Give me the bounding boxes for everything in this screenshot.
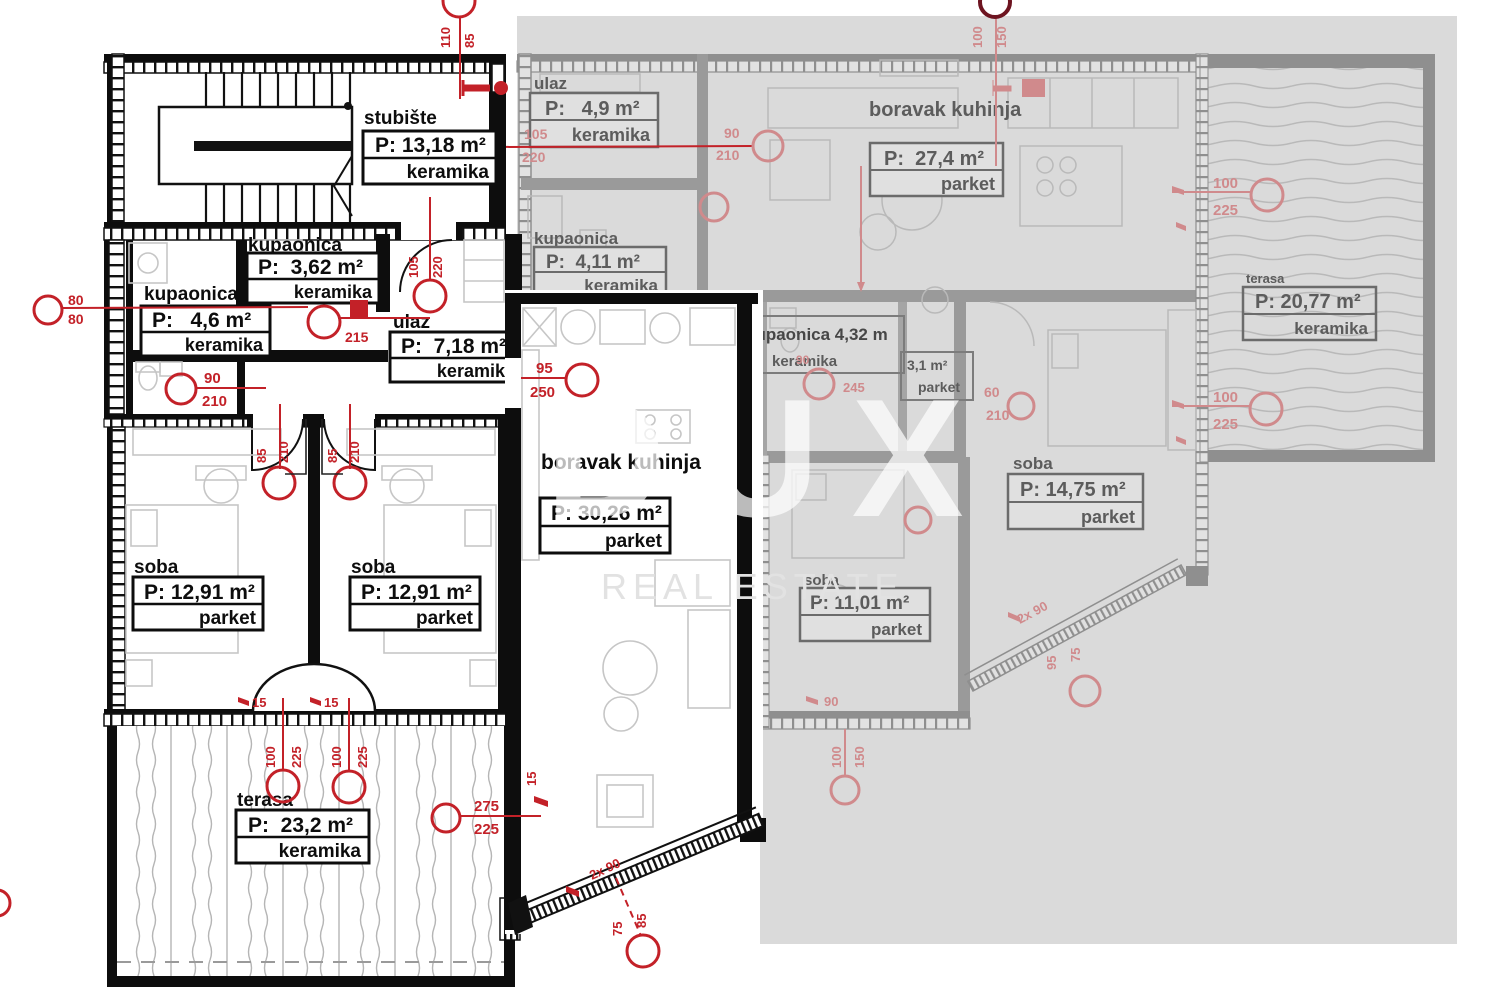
svg-text:85: 85	[254, 449, 269, 463]
svg-text:220: 220	[430, 256, 445, 278]
svg-text:kupaonica: kupaonica	[534, 229, 619, 248]
svg-text:kupaonica 4,32 m: kupaonica 4,32 m	[746, 325, 888, 344]
svg-text:P: 27,4 m²: P: 27,4 m²	[884, 148, 984, 170]
svg-text:215: 215	[345, 329, 369, 345]
svg-text:15: 15	[524, 772, 539, 786]
svg-text:90: 90	[724, 125, 740, 141]
svg-text:P: 4,9 m²: P: 4,9 m²	[545, 98, 640, 120]
svg-text:keramika: keramika	[185, 335, 264, 355]
svg-text:225: 225	[1213, 202, 1238, 219]
svg-text:P: 12,91 m²: P: 12,91 m²	[361, 581, 472, 604]
svg-text:keramika: keramika	[437, 361, 516, 381]
svg-text:210: 210	[347, 441, 362, 463]
svg-text:100: 100	[1213, 175, 1238, 192]
svg-text:keramika: keramika	[572, 125, 651, 145]
svg-text:225: 225	[474, 821, 499, 838]
svg-text:100: 100	[329, 746, 344, 768]
svg-text:225: 225	[355, 746, 370, 768]
svg-text:75: 75	[1068, 648, 1083, 662]
svg-text:ulaz: ulaz	[534, 74, 567, 93]
svg-text:80: 80	[68, 311, 84, 327]
svg-text:85: 85	[634, 914, 649, 928]
svg-text:100: 100	[829, 746, 844, 768]
svg-text:parket: parket	[871, 620, 922, 639]
svg-text:85: 85	[462, 34, 477, 48]
svg-text:90: 90	[204, 370, 221, 387]
svg-text:100: 100	[970, 26, 985, 48]
svg-text:75: 75	[610, 922, 625, 936]
svg-text:P: 13,18 m²: P: 13,18 m²	[375, 134, 486, 157]
svg-text:keramika: keramika	[279, 841, 362, 862]
svg-text:85: 85	[325, 449, 340, 463]
svg-text:P: 12,91 m²: P: 12,91 m²	[144, 581, 255, 604]
svg-text:DUX: DUX	[545, 364, 996, 552]
svg-text:REAL ESTATE: REAL ESTATE	[601, 566, 904, 607]
svg-text:parket: parket	[941, 174, 995, 194]
svg-text:soba: soba	[351, 557, 396, 578]
svg-text:keramika: keramika	[1294, 319, 1368, 338]
svg-text:P: 14,75 m²: P: 14,75 m²	[1020, 479, 1126, 501]
svg-text:P: 3,62 m²: P: 3,62 m²	[258, 256, 363, 279]
svg-text:stubište: stubište	[364, 108, 437, 129]
svg-text:15: 15	[252, 695, 266, 710]
svg-text:210: 210	[202, 393, 227, 410]
svg-text:parket: parket	[1081, 507, 1135, 527]
svg-text:boravak kuhinja: boravak kuhinja	[869, 99, 1022, 121]
svg-text:terasa: terasa	[1246, 271, 1285, 286]
svg-text:100: 100	[1213, 389, 1238, 406]
svg-text:15: 15	[324, 695, 338, 710]
svg-text:P: 7,18 m²: P: 7,18 m²	[401, 335, 506, 358]
svg-text:220: 220	[522, 149, 546, 165]
svg-text:250: 250	[530, 384, 555, 401]
svg-text:parket: parket	[416, 608, 474, 629]
svg-text:150: 150	[852, 746, 867, 768]
svg-text:150: 150	[994, 26, 1009, 48]
svg-text:soba: soba	[134, 557, 179, 578]
svg-text:210: 210	[276, 441, 291, 463]
svg-text:210: 210	[716, 147, 740, 163]
svg-text:275: 275	[474, 798, 499, 815]
svg-text:100: 100	[263, 746, 278, 768]
svg-text:95: 95	[536, 360, 553, 377]
svg-text:95: 95	[1044, 656, 1059, 670]
svg-text:P: 23,2 m²: P: 23,2 m²	[248, 814, 353, 837]
svg-text:P: 20,77 m²: P: 20,77 m²	[1255, 291, 1361, 313]
svg-text:105: 105	[406, 256, 421, 278]
svg-text:80: 80	[68, 292, 84, 308]
svg-text:225: 225	[1213, 416, 1238, 433]
svg-text:P: 4,11 m²: P: 4,11 m²	[546, 252, 640, 273]
svg-text:kupaonica: kupaonica	[144, 284, 238, 305]
svg-text:225: 225	[289, 746, 304, 768]
svg-text:ulaz: ulaz	[393, 312, 430, 333]
svg-text:parket: parket	[199, 608, 257, 629]
svg-text:90: 90	[824, 694, 838, 709]
svg-text:soba: soba	[1013, 454, 1053, 473]
svg-text:P: 4,6 m²: P: 4,6 m²	[152, 309, 251, 332]
svg-text:keramika: keramika	[407, 162, 490, 183]
svg-text:110: 110	[438, 27, 453, 48]
svg-text:105: 105	[524, 126, 548, 142]
svg-text:keramika: keramika	[294, 282, 373, 302]
